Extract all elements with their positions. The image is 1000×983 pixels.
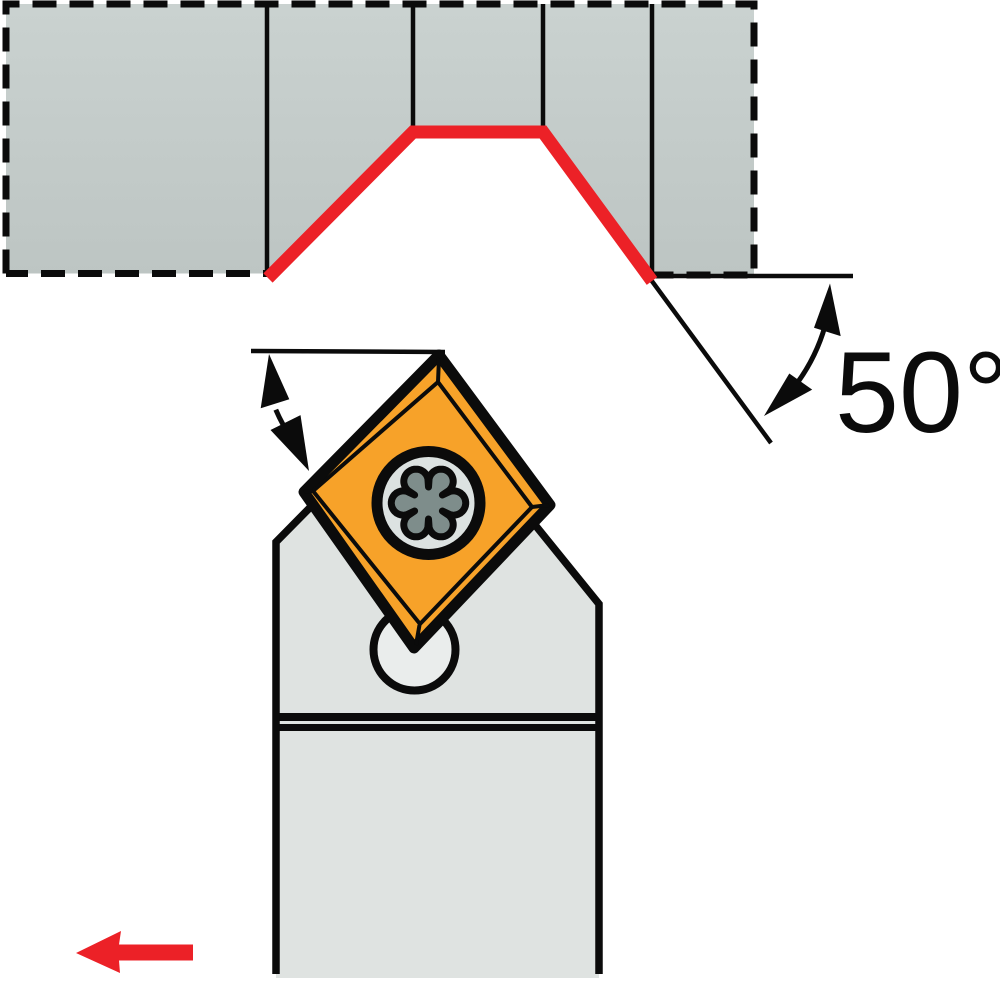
svg-text:50°: 50° (835, 329, 1000, 457)
